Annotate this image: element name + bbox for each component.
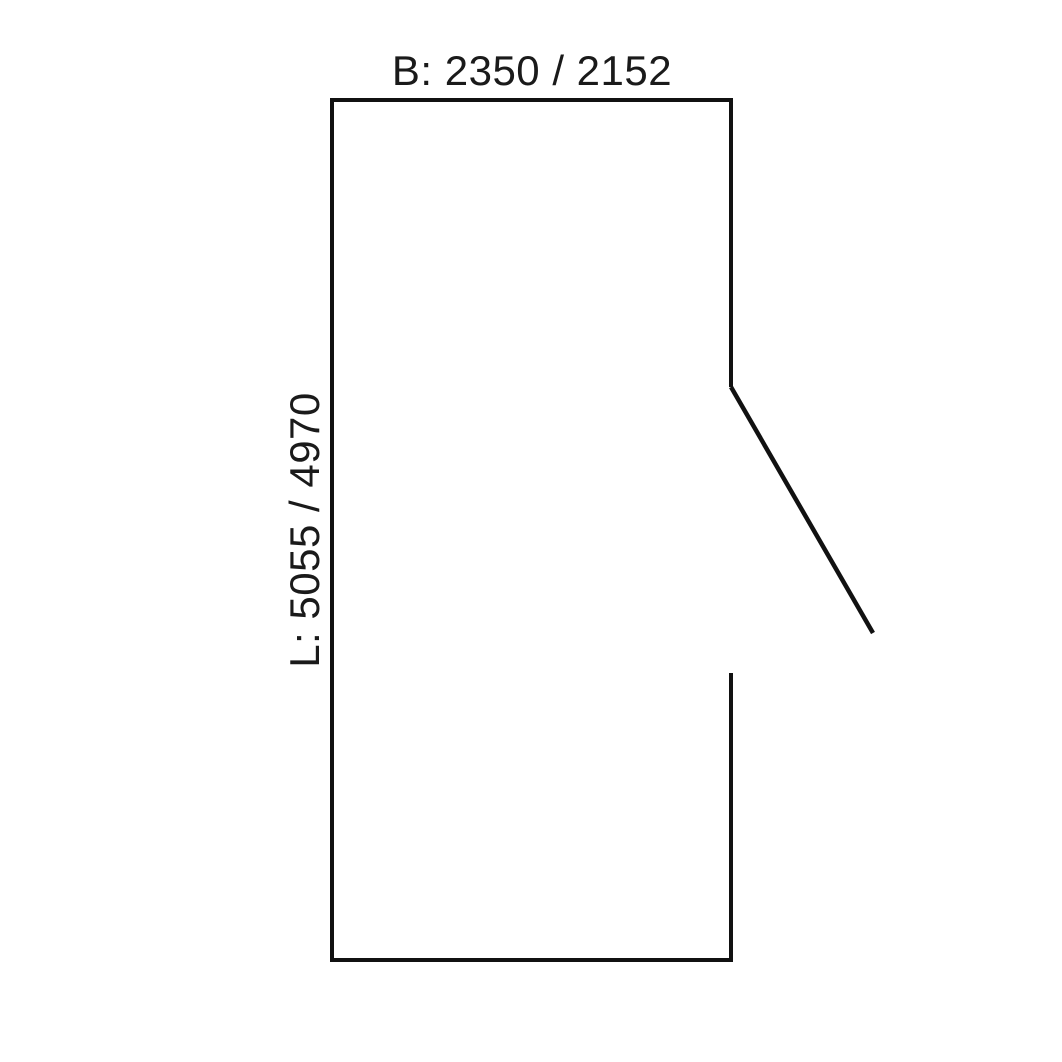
floor-plan-svg bbox=[0, 0, 1062, 1062]
width-dimension-label: B: 2350 / 2152 bbox=[332, 50, 732, 92]
diagram-page: { "diagram": { "top_label": "B: 2350 / 2… bbox=[0, 0, 1062, 1062]
floor-plan-diagram: B: 2350 / 2152 L: 5055 / 4970 bbox=[0, 0, 1062, 1062]
door-swing-line bbox=[731, 387, 873, 633]
walls-outline-path bbox=[332, 100, 731, 960]
length-dimension-label: L: 5055 / 4970 bbox=[284, 100, 326, 960]
